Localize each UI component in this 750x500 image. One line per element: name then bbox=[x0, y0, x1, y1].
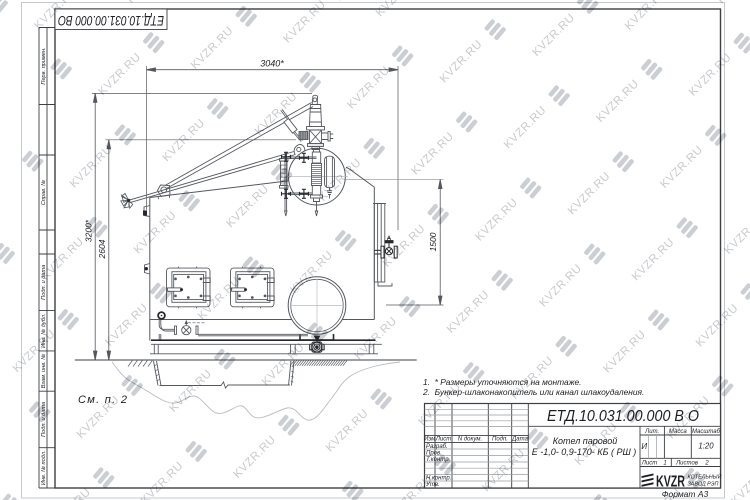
svg-text:Подп.: Подп. bbox=[492, 437, 508, 443]
svg-text:Пров.: Пров. bbox=[426, 450, 442, 456]
svg-text:N докум.: N докум. bbox=[458, 437, 482, 443]
svg-text:Дата: Дата bbox=[511, 437, 528, 443]
svg-text:Е -1,0- 0,9-170- КБ ( РШ ): Е -1,0- 0,9-170- КБ ( РШ ) bbox=[532, 447, 636, 457]
svg-text:1: 1 bbox=[663, 461, 666, 467]
svg-text:Лит.: Лит. bbox=[644, 429, 659, 435]
svg-text:Листов: Листов bbox=[675, 461, 698, 467]
svg-text:Масштаб: Масштаб bbox=[692, 429, 721, 435]
svg-text:KVZR: KVZR bbox=[656, 474, 685, 491]
svg-text:ЕТД.10.031.00.000 В О: ЕТД.10.031.00.000 В О bbox=[547, 408, 699, 425]
svg-text:Изм: Изм bbox=[424, 437, 435, 443]
svg-text:ЗАВОД РЭП: ЗАВОД РЭП bbox=[688, 482, 719, 488]
svg-text:Лист: Лист bbox=[641, 461, 657, 467]
svg-text:Формат А3: Формат А3 bbox=[662, 489, 709, 499]
svg-text:Масса: Масса bbox=[669, 429, 687, 435]
svg-text:Лист: Лист bbox=[435, 437, 451, 443]
svg-text:2: 2 bbox=[704, 461, 709, 467]
svg-text:И: И bbox=[641, 442, 647, 451]
svg-text:Т.контр.: Т.контр. bbox=[426, 457, 450, 463]
svg-text:1:20: 1:20 bbox=[698, 442, 714, 451]
svg-text:Котел паровой: Котел паровой bbox=[553, 436, 618, 446]
svg-text:Утв.: Утв. bbox=[425, 482, 440, 488]
svg-text:Разраб.: Разраб. bbox=[426, 444, 448, 450]
svg-text:КОТЕЛЬНЫЙ: КОТЕЛЬНЫЙ bbox=[688, 473, 722, 481]
svg-text:Н.контр.: Н.контр. bbox=[426, 475, 451, 481]
